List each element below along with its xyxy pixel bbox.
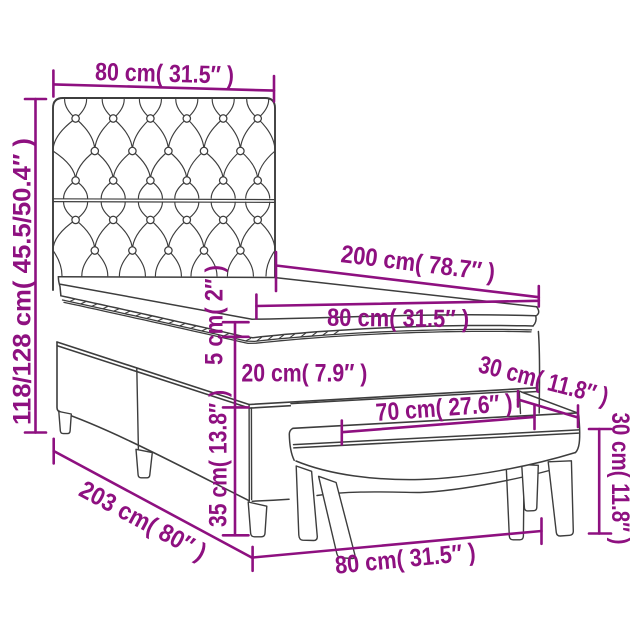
svg-text:118/128 cm( 45.5/50.4″ ): 118/128 cm( 45.5/50.4″ ): [9, 138, 37, 425]
svg-text:80 cm( 31.5″ ): 80 cm( 31.5″ ): [327, 304, 469, 333]
svg-text:80 cm( 31.5″ ): 80 cm( 31.5″ ): [95, 58, 235, 90]
svg-text:35 cm( 13.8″ ): 35 cm( 13.8″ ): [204, 390, 232, 527]
svg-text:5 cm( 2″ ): 5 cm( 2″ ): [201, 265, 229, 365]
svg-text:20 cm( 7.9″ ): 20 cm( 7.9″ ): [241, 360, 367, 388]
svg-text:30 cm( 11.8″ ): 30 cm( 11.8″ ): [606, 413, 634, 545]
